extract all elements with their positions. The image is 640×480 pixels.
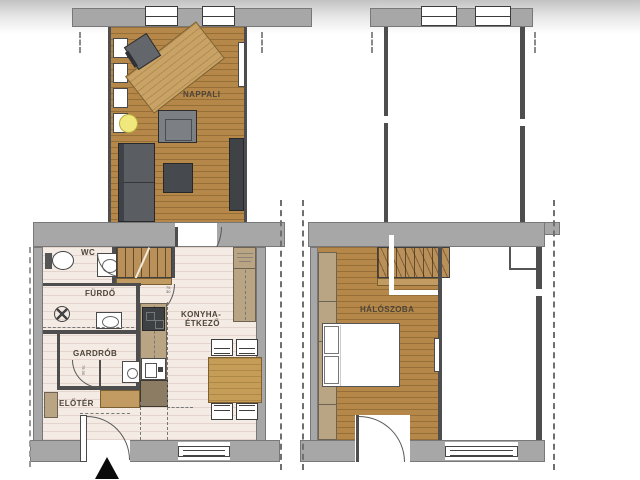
- window: [145, 6, 178, 26]
- wall-junction-left: [33, 222, 285, 247]
- dining-chair: [211, 339, 233, 356]
- window-with-radiator: [178, 446, 230, 457]
- door-size-tag: 75 30: [81, 365, 85, 375]
- sink-bowl: [145, 363, 157, 378]
- wall-left: [33, 247, 43, 443]
- pantry-cabinet: [233, 247, 256, 322]
- sofa: [118, 143, 155, 222]
- sofa-cushion-line: [124, 182, 154, 183]
- washing-machine: [122, 361, 140, 383]
- wall-living-left: [108, 27, 111, 223]
- chimney-line: [509, 247, 511, 270]
- room-label-wc: WC: [81, 248, 95, 257]
- hall-bench: [100, 390, 140, 408]
- wall-void-left: [384, 27, 388, 223]
- wall-upper-right: [536, 247, 542, 443]
- cabinet-note-line: [239, 261, 251, 262]
- dining-table: [208, 357, 262, 403]
- armchair-seat: [165, 119, 192, 141]
- stair-cut-line: [134, 247, 150, 281]
- dining-chair: [236, 339, 258, 356]
- window: [421, 6, 457, 26]
- room-label-konyha-line2: ÉTKEZŐ: [185, 319, 220, 328]
- window: [202, 6, 235, 26]
- wardrobe-divider: [319, 301, 336, 302]
- wall-break: [536, 289, 542, 296]
- cabinet-divider: [234, 268, 255, 269]
- shelf: [113, 63, 128, 83]
- coffee-table: [163, 163, 193, 193]
- wall-bottom: [30, 440, 280, 462]
- wall-stairs-right: [172, 247, 175, 278]
- kitchen-sink: [141, 358, 166, 380]
- axis-tick: [261, 32, 263, 53]
- floorplan-canvas: NAPPALI WC FÜRDŐ: [0, 0, 640, 480]
- window-with-radiator: [445, 446, 518, 457]
- axis-tick: [79, 32, 81, 53]
- window: [475, 6, 511, 26]
- zone-guide: [167, 407, 193, 408]
- radiator: [238, 42, 245, 87]
- wall-gardrob-left: [57, 334, 60, 390]
- roof-overhang-line: [302, 200, 304, 470]
- bed: [322, 323, 400, 387]
- roof-overhang-line: [29, 247, 31, 467]
- bedroom-wall-door-leaf: [434, 338, 440, 372]
- dining-chair: [236, 403, 258, 420]
- room-label-furdo: FÜRDŐ: [85, 289, 115, 298]
- axis-tick: [371, 32, 373, 53]
- stove: [142, 307, 165, 331]
- pillow: [324, 356, 339, 384]
- section-line-horizontal: [389, 290, 443, 295]
- shower-zone-line: [43, 327, 139, 328]
- room-label-haloszoba: HÁLÓSZOBA: [360, 305, 414, 314]
- burner: [155, 320, 164, 329]
- pouf: [119, 114, 138, 133]
- gardrob-door-leaf: [99, 360, 101, 388]
- entrance-lintel: [80, 413, 130, 414]
- entrance-door-leaf: [80, 415, 87, 462]
- wall-junction-right: [308, 222, 545, 247]
- washer-drum: [127, 368, 138, 379]
- stairs-ground: [116, 247, 172, 278]
- tv-cabinet: [229, 138, 244, 211]
- wall-break: [384, 116, 388, 123]
- door-tag-height: 30: [166, 290, 170, 294]
- room-label-gardrob: GARDRÓB: [73, 349, 117, 358]
- room-label-konyha-line1: KONYHA-: [181, 310, 221, 319]
- roof-overhang-line: [553, 200, 555, 470]
- toilet-bowl: [52, 251, 74, 270]
- counter-end-cabinet: [140, 380, 168, 407]
- shelf: [113, 88, 128, 108]
- wall-break: [520, 119, 525, 126]
- room-label-eloter: ELŐTÉR: [59, 399, 94, 408]
- cabinet-note-line: [237, 257, 253, 258]
- wall-junction-ext: [544, 222, 560, 235]
- wall-bedroom-left: [310, 247, 318, 443]
- dining-chair: [211, 403, 233, 420]
- stair-landing: [377, 278, 440, 286]
- mattress-line: [340, 325, 341, 386]
- toilet-tank: [45, 253, 52, 269]
- door-size-tag: 75 30: [166, 286, 170, 294]
- armchair: [158, 110, 197, 143]
- room-label-nappali: NAPPALI: [183, 90, 220, 99]
- entrance-arrow: [95, 457, 119, 479]
- zone-guide: [140, 402, 141, 440]
- hall-cabinet: [44, 392, 58, 418]
- sink-faucet: [158, 367, 163, 372]
- shower-drain: [54, 306, 70, 322]
- zone-guide: [167, 302, 168, 440]
- section-line-vertical: [389, 235, 394, 293]
- roof-overhang-line: [280, 200, 282, 470]
- axis-tick: [534, 32, 536, 53]
- burner: [146, 312, 155, 321]
- cabinet-centerline: [245, 270, 246, 320]
- chimney-line: [509, 268, 537, 270]
- wall-bath-top: [43, 283, 141, 286]
- cabinet-note-line: [237, 253, 253, 254]
- wardrobe-divider: [319, 404, 336, 405]
- pillow: [324, 326, 339, 354]
